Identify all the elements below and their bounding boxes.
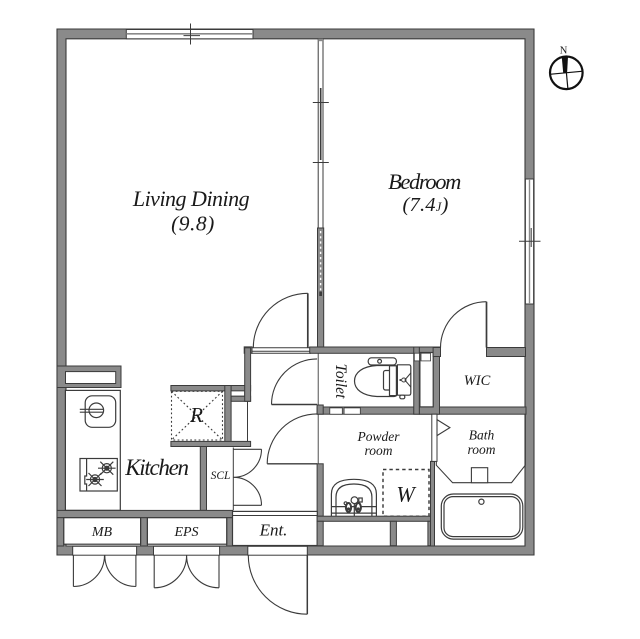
svg-text:room: room — [467, 442, 495, 457]
svg-text:EPS: EPS — [173, 525, 198, 540]
svg-text:room: room — [364, 443, 392, 458]
svg-text:W: W — [396, 482, 416, 507]
svg-text:R: R — [189, 403, 203, 427]
svg-text:WIC: WIC — [464, 373, 491, 389]
svg-text:Bath: Bath — [469, 427, 495, 442]
svg-text:Toilet: Toilet — [332, 364, 349, 399]
svg-text:(7.4J): (7.4J) — [402, 194, 448, 216]
svg-text:Kitchen: Kitchen — [124, 455, 188, 480]
svg-text:SCL: SCL — [211, 470, 231, 482]
svg-text:Powder: Powder — [357, 429, 401, 444]
svg-text:(9.8): (9.8) — [171, 211, 215, 235]
svg-text:Bedroom: Bedroom — [388, 169, 461, 194]
svg-text:Living Dining: Living Dining — [132, 186, 250, 211]
svg-text:Ent.: Ent. — [259, 521, 288, 540]
svg-text:MB: MB — [91, 525, 113, 540]
svg-text:N: N — [560, 46, 568, 57]
